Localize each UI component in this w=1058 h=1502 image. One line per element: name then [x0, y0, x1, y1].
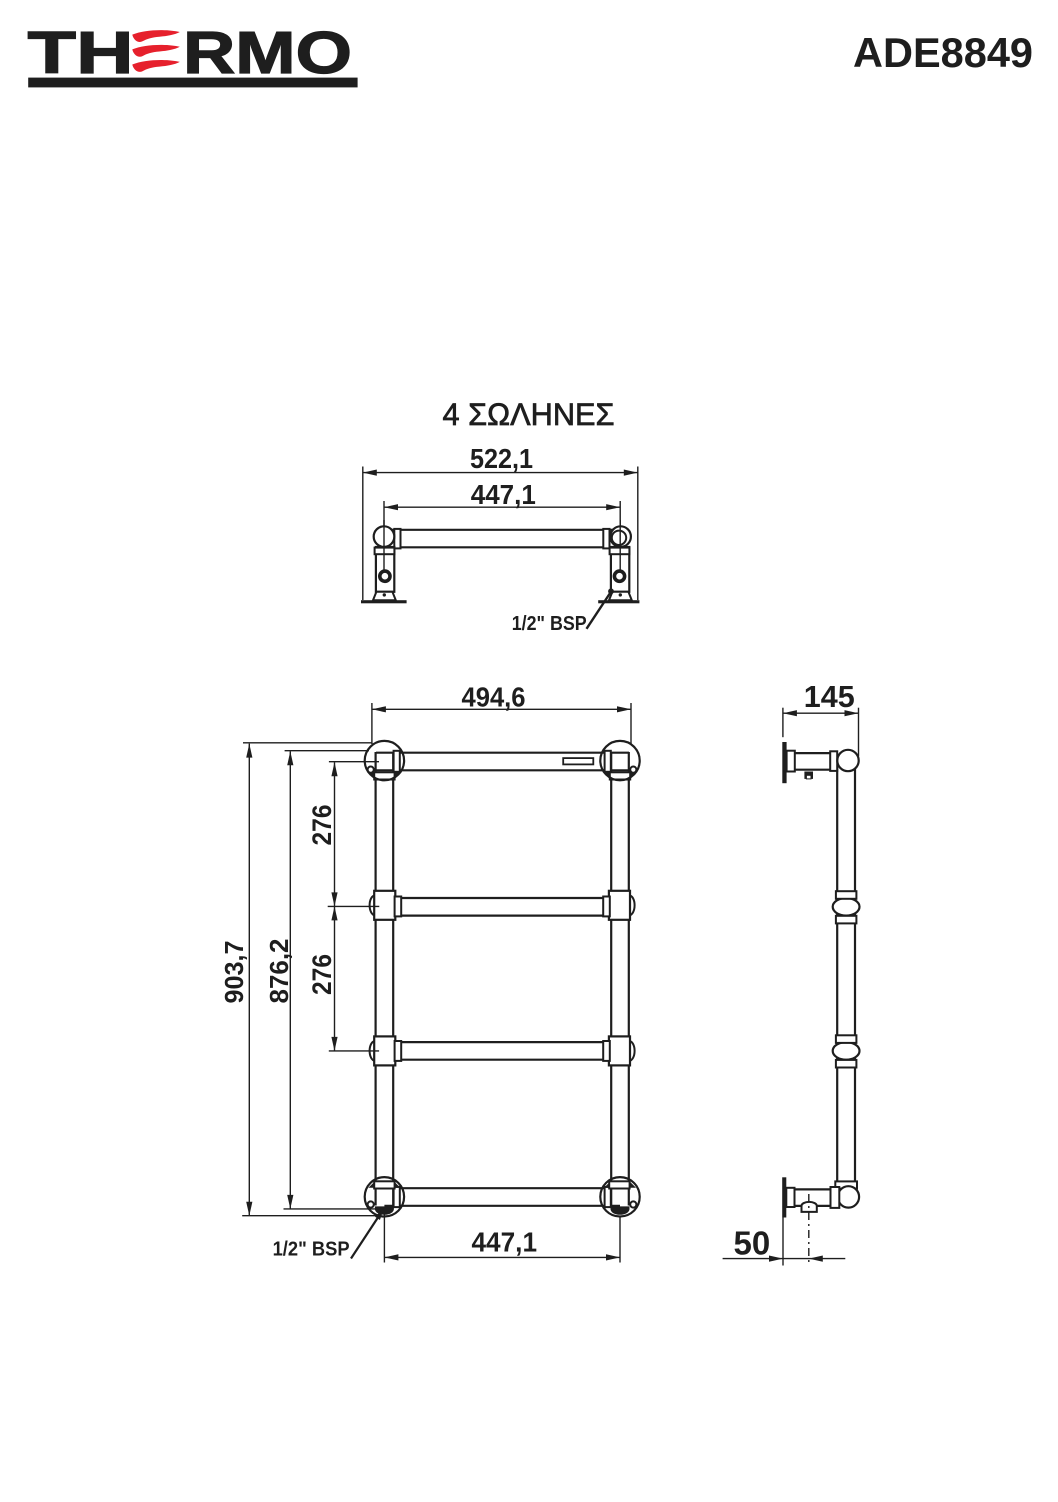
svg-text:1/2" BSP: 1/2" BSP: [512, 613, 587, 635]
svg-text:494,6: 494,6: [462, 682, 526, 713]
svg-text:1/2" BSP: 1/2" BSP: [273, 1239, 350, 1261]
svg-text:522,1: 522,1: [470, 443, 533, 474]
svg-text:903,7: 903,7: [219, 941, 249, 1004]
svg-text:276: 276: [307, 954, 337, 995]
svg-text:RMO: RMO: [183, 20, 352, 86]
svg-text:4 ΣΩΛΗΝΕΣ: 4 ΣΩΛΗΝΕΣ: [443, 396, 615, 432]
svg-text:145: 145: [804, 679, 855, 714]
svg-text:TH: TH: [28, 20, 134, 86]
svg-text:447,1: 447,1: [472, 1227, 538, 1258]
svg-text:50: 50: [734, 1224, 771, 1261]
svg-text:447,1: 447,1: [471, 479, 536, 510]
svg-text:876,2: 876,2: [264, 939, 294, 1004]
svg-text:ADE8849: ADE8849: [853, 29, 1033, 76]
svg-text:276: 276: [307, 805, 337, 846]
